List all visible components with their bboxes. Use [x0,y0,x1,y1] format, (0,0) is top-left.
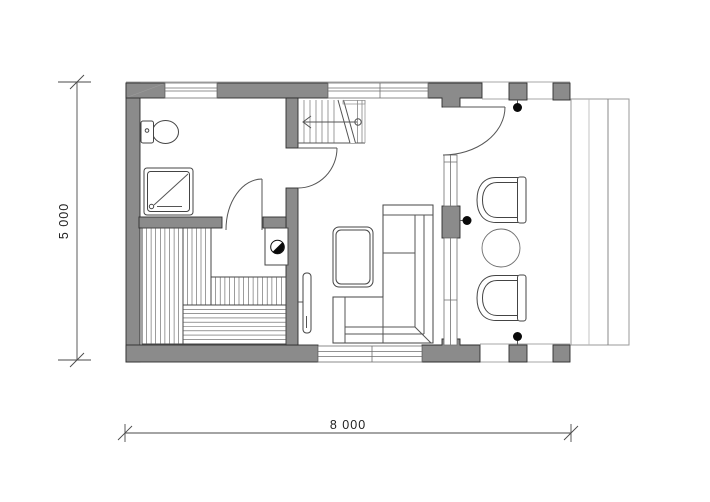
wall-left [126,83,140,362]
deck-steps [571,99,629,345]
porch-pier-top [509,83,527,100]
toilet [141,121,179,144]
glazed-wall-pier [442,206,460,238]
round-table [482,229,520,267]
interior-wall-horizontal [139,217,222,228]
doors [226,107,505,230]
armchair-top [477,177,526,223]
wall-top-right [428,83,482,107]
shower-tray [144,168,193,215]
hall-door [298,148,337,188]
sauna-stove [265,228,288,265]
wall-bottom-left [126,345,318,362]
floor-plan-canvas: 5 000 8 000 [0,0,710,502]
column-dot-middle [463,216,472,225]
porch-post-bottom-right [553,345,570,362]
armchair-bottom [477,275,526,321]
sauna-bench-left [142,228,183,344]
porch-post-top-right [553,83,570,100]
dimension-width: 8 000 [118,418,578,442]
window-top-right [328,83,428,98]
sauna-bench-lower [183,305,286,344]
entrance-door [443,107,505,155]
porch-pier-bottom [509,345,527,362]
interior-wall-stub [263,217,286,228]
glazed-right-wall [444,155,457,345]
dimension-width-label: 8 000 [330,418,366,432]
window-bottom [318,346,422,362]
sauna-door [226,179,262,230]
shower-drain [149,204,153,208]
dimension-height: 5 000 [57,75,91,367]
window-top-left [165,83,217,98]
staircase [298,100,365,143]
wall-top-mid [217,83,328,98]
column-dot-top [513,103,522,112]
stair-walkline-arrow [303,116,361,128]
dimension-height-label: 5 000 [57,203,71,239]
column-dot-bottom [513,332,522,341]
tv [298,273,311,333]
coffee-table [333,227,373,287]
sauna-benches [142,228,286,344]
interior-wall-vertical-upper [286,98,298,148]
interior-wall-vertical-lower [286,188,298,345]
floor-plan-page: 5 000 8 000 [0,0,710,502]
